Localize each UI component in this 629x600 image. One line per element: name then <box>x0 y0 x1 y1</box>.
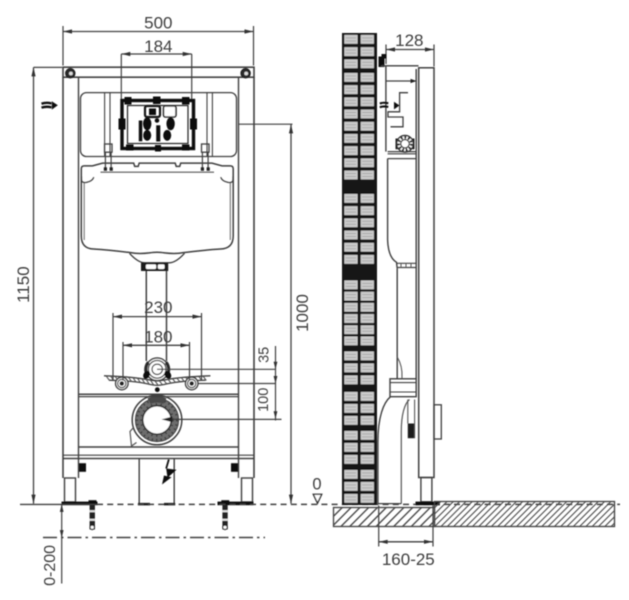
svg-text:0-200: 0-200 <box>42 545 59 586</box>
svg-text:500: 500 <box>144 13 172 32</box>
svg-text:230: 230 <box>144 298 172 317</box>
svg-text:128: 128 <box>395 31 423 50</box>
svg-text:1150: 1150 <box>14 266 33 303</box>
svg-text:184: 184 <box>144 37 172 56</box>
svg-text:0: 0 <box>312 475 321 493</box>
svg-text:160-25: 160-25 <box>382 550 435 569</box>
svg-text:180: 180 <box>144 327 172 346</box>
svg-text:100: 100 <box>256 388 272 412</box>
svg-text:35: 35 <box>256 347 272 363</box>
svg-text:1000: 1000 <box>293 294 312 332</box>
